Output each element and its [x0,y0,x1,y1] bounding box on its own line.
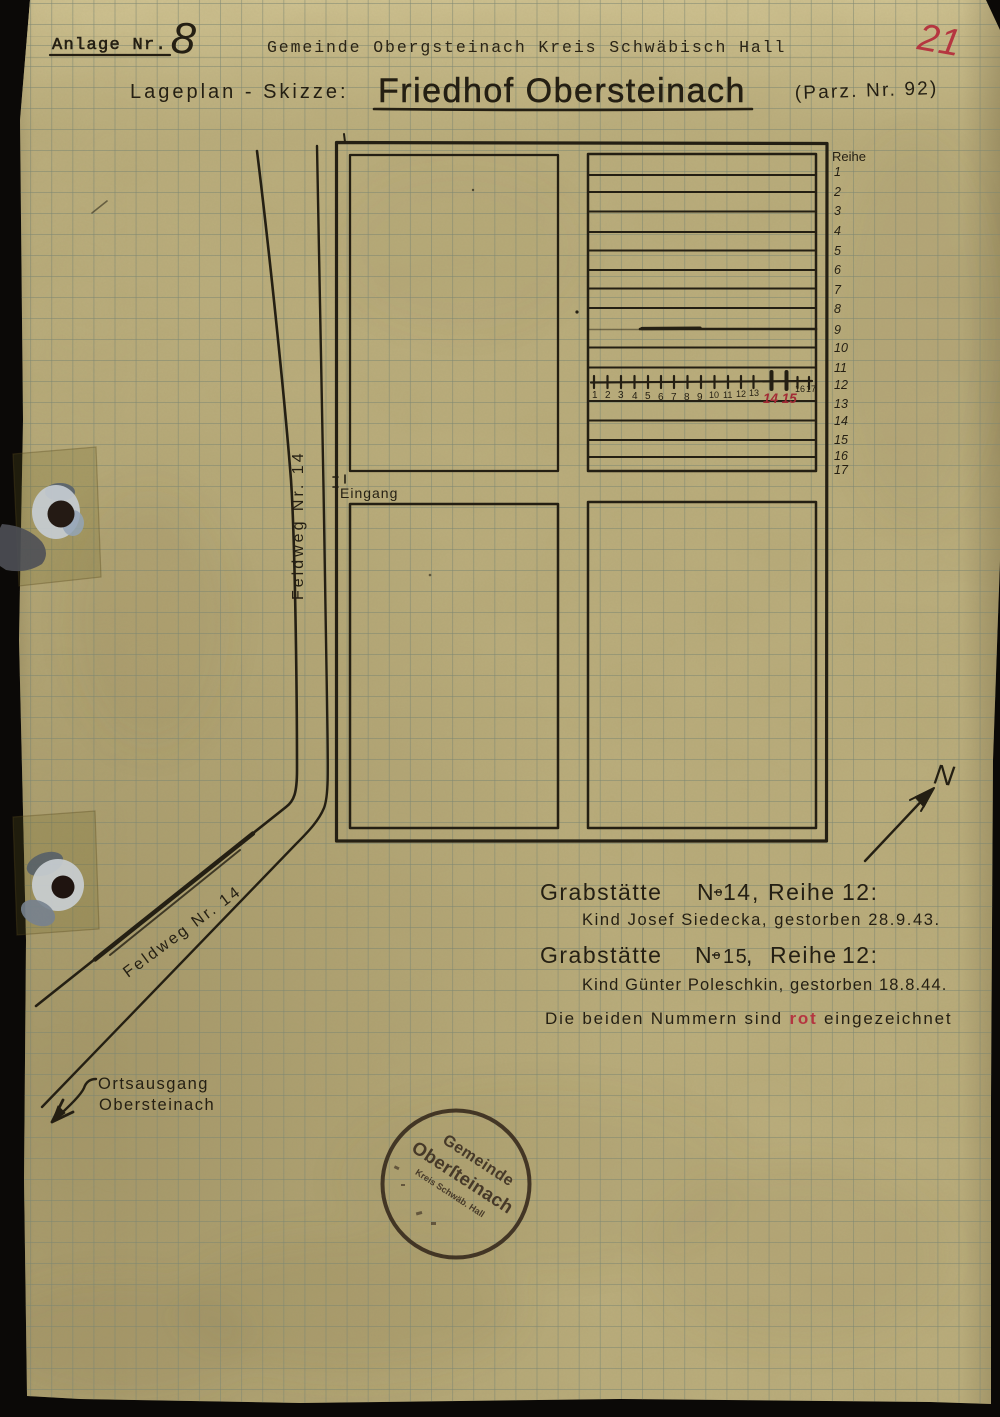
svg-text:14 15: 14 15 [763,391,797,406]
svg-text:3: 3 [618,390,624,401]
svg-text:8: 8 [684,392,690,403]
svg-text:Lageplan - Skizze:: Lageplan - Skizze: [130,81,349,103]
svg-text:3: 3 [834,204,841,218]
svg-text:17: 17 [806,384,816,394]
svg-text:GrabstätteNo14,Reihe12:: GrabstätteNo14,Reihe12: [540,879,878,905]
svg-text:12: 12 [834,378,848,392]
svg-text:Gemeinde Obergsteinach Kreis S: Gemeinde Obergsteinach Kreis Schwäbisch … [267,38,786,57]
svg-text:5: 5 [834,244,841,258]
svg-text:10: 10 [834,341,848,355]
svg-text:Ortsausgang: Ortsausgang [98,1075,209,1093]
svg-text:Eingang: Eingang [340,485,398,501]
svg-text:GrabstätteNo15,Reihe12:: GrabstätteNo15,Reihe12: [540,942,878,968]
svg-text:7: 7 [671,392,677,403]
svg-text:2: 2 [605,390,611,401]
svg-text:21: 21 [914,16,964,65]
svg-text:6: 6 [834,263,841,277]
svg-text:Die beiden Nummern sind rot ei: Die beiden Nummern sind rot eingezeichne… [545,1009,952,1028]
svg-text:13: 13 [749,388,759,398]
svg-text:Reihe: Reihe [832,149,866,164]
svg-text:6: 6 [658,392,664,403]
svg-text:Feldweg Nr. 14: Feldweg Nr. 14 [290,450,307,600]
svg-text:8: 8 [169,13,197,64]
svg-text:14: 14 [834,414,848,428]
svg-text:9: 9 [697,392,703,403]
svg-text:11: 11 [834,361,847,375]
svg-text:17: 17 [834,463,849,477]
svg-text:16: 16 [834,449,848,463]
svg-text:2: 2 [833,185,841,199]
svg-text:5: 5 [645,391,651,402]
svg-text:Kind Günter Poleschkin, gestor: Kind Günter Poleschkin, gestorben 18.8.4… [582,976,947,994]
svg-text:11: 11 [723,390,732,400]
svg-text:9: 9 [834,323,841,337]
svg-text:4: 4 [632,391,638,402]
svg-text:1: 1 [834,165,841,179]
svg-text:8: 8 [834,302,841,316]
svg-text:15: 15 [834,433,848,447]
svg-text:7: 7 [834,283,842,297]
svg-text:Anlage Nr.: Anlage Nr. [52,36,167,55]
svg-text:4: 4 [834,224,841,238]
svg-text:13: 13 [834,397,848,411]
svg-text:Kind Josef Siedecka, gestorben: Kind Josef Siedecka, gestorben 28.9.43. [582,911,941,929]
svg-text:Friedhof Obersteinach: Friedhof Obersteinach [378,72,746,110]
svg-text:1: 1 [592,390,598,401]
svg-text:12: 12 [736,389,746,399]
svg-text:10: 10 [709,390,719,400]
svg-text:Obersteinach: Obersteinach [99,1096,215,1114]
